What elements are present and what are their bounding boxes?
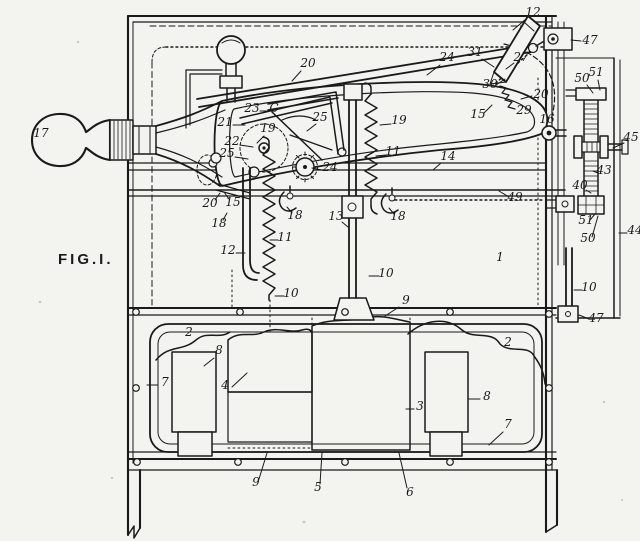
part-label-25: 25	[218, 146, 234, 160]
part-label-10: 10	[378, 266, 394, 280]
leader-line-9	[259, 453, 267, 479]
part-label-19: 19	[391, 113, 407, 127]
part-label-45: 45	[622, 130, 638, 144]
part-label-7: 7	[504, 417, 512, 431]
part-label-12: 12	[220, 243, 235, 257]
part-label-43: 43	[595, 163, 612, 177]
spool-flange-left	[574, 136, 582, 158]
leader-line-8	[204, 358, 214, 366]
part-label-25: 25	[311, 110, 327, 124]
leader-line-20	[292, 71, 301, 81]
cylinder-4	[228, 329, 312, 392]
part-label-40: 40	[571, 178, 588, 192]
part-label-2: 2	[184, 325, 193, 339]
part-label-29: 29	[515, 103, 532, 117]
part-label-10: 10	[581, 280, 597, 294]
part-label-15: 15	[470, 107, 485, 121]
spool-flange-right	[600, 136, 608, 158]
brush-cylinder-8-left	[172, 352, 216, 432]
part-label-10: 10	[283, 286, 299, 300]
part-label-20: 20	[299, 56, 316, 70]
part-label-51: 51	[588, 65, 603, 79]
part-label-51: 51	[578, 213, 593, 227]
part-label-18: 18	[287, 208, 303, 222]
part-label-18: 18	[211, 216, 227, 230]
part-label-11: 11	[277, 230, 292, 244]
part-label-49: 49	[506, 190, 523, 204]
part-label-C: C	[269, 101, 278, 115]
part-label-8: 8	[215, 343, 223, 357]
part-labels: 124724312720302029151623C211922252524191…	[33, 5, 640, 499]
part-label-31: 31	[467, 45, 482, 59]
brush-cylinder-8-right	[425, 352, 468, 432]
pedestal-left	[178, 432, 212, 456]
part-label-24: 24	[438, 50, 454, 64]
figure-label: FIG.I.	[58, 251, 114, 268]
part-label-20: 20	[532, 87, 549, 101]
part-label-20: 20	[201, 196, 218, 210]
pedestal-right	[430, 432, 462, 456]
part-label-14: 14	[440, 149, 455, 163]
part-label-30: 30	[482, 77, 498, 91]
part-label-18: 18	[390, 209, 406, 223]
frame-legs	[128, 470, 557, 538]
shaft-clevis-mid	[342, 196, 363, 218]
shaft-clevis-top	[344, 84, 362, 100]
handle-ferrule	[110, 120, 133, 160]
part-label-19: 19	[260, 121, 276, 135]
part-label-17: 17	[33, 126, 49, 140]
leader-line-24	[427, 65, 440, 75]
leader-line-31	[482, 59, 494, 67]
part-label-44: 44	[626, 223, 640, 237]
leader-line-14	[433, 163, 441, 170]
cylinder-5	[312, 317, 410, 450]
part-label-21: 21	[216, 115, 232, 129]
arm-pivot	[529, 44, 538, 53]
lower-compartment	[150, 298, 545, 456]
cylinder-4-band	[228, 392, 312, 442]
u-rod	[243, 168, 259, 280]
part-label-2: 2	[503, 335, 512, 349]
part-label-6: 6	[406, 485, 414, 499]
part-label-12: 12	[525, 5, 540, 19]
patent-drawing-page: 124724312720302029151623C211922252524191…	[0, 0, 640, 541]
part-label-47: 47	[587, 311, 604, 325]
part-label-50: 50	[580, 231, 596, 245]
part-label-24: 24	[321, 160, 337, 174]
part-label-16: 16	[539, 112, 555, 126]
part-label-5: 5	[314, 480, 322, 494]
leader-line-7	[489, 432, 503, 445]
handle-collar	[133, 126, 156, 154]
part-label-23: 23	[243, 101, 260, 115]
part-label-9: 9	[252, 475, 260, 489]
part-label-47: 47	[581, 33, 598, 47]
part-label-13: 13	[328, 209, 344, 223]
part-label-4: 4	[220, 378, 229, 392]
funnel	[334, 298, 374, 320]
part-label-9: 9	[402, 293, 410, 307]
part-label-27: 27	[512, 50, 529, 64]
part-label-7: 7	[161, 375, 169, 389]
part-label-15: 15	[225, 195, 240, 209]
part-label-3: 3	[416, 399, 424, 413]
patent-figure-svg: 124724312720302029151623C211922252524191…	[0, 0, 640, 541]
knob-collar	[220, 76, 242, 88]
part-label-11: 11	[385, 144, 400, 158]
part-label-8: 8	[483, 389, 491, 403]
handle-grip	[32, 114, 110, 166]
leader-line-4	[232, 373, 247, 387]
feed-pipe	[566, 248, 572, 306]
part-label-1: 1	[496, 250, 504, 264]
